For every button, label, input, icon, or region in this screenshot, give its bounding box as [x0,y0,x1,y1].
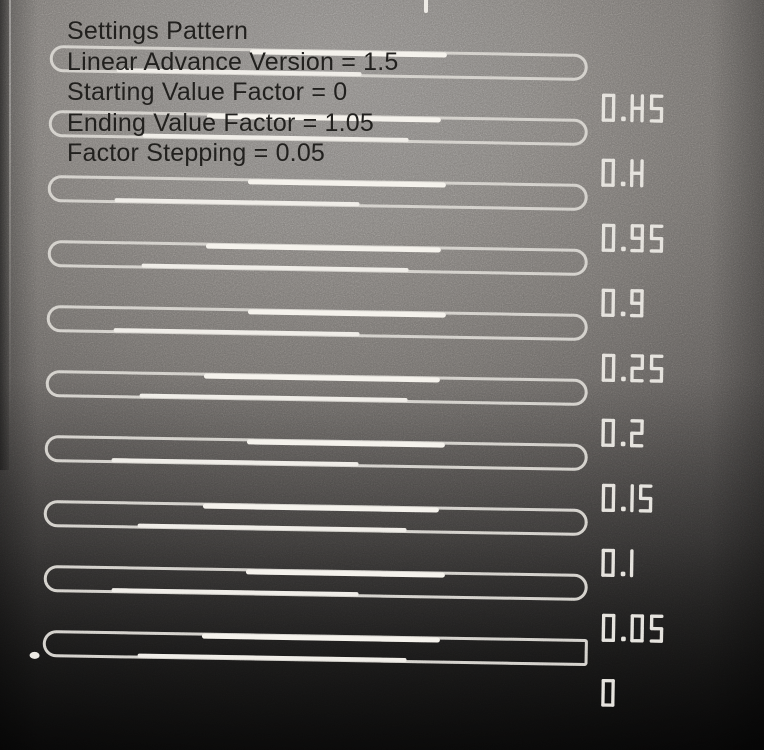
extrusion-highlight [247,439,446,447]
setting-line-start: Starting Value Factor = 0 [67,77,399,108]
factor-label [600,677,617,708]
test-line-row [42,630,683,717]
extrusion-highlight [112,458,359,467]
settings-text-block: Settings Pattern Linear Advance Version … [67,16,399,169]
extrusion-highlight [111,588,359,597]
extrusion-highlight [141,263,408,272]
extrusion-highlight [137,653,407,662]
extrusion-highlight [138,523,407,532]
extrusion-highlight [140,393,408,402]
setting-line-end: Ending Value Factor = 1.05 [67,108,399,139]
settings-title: Settings Pattern [67,16,399,47]
extrusion-highlight [246,569,445,577]
extrusion-highlight [248,309,446,317]
print-bed-photo: Settings Pattern Linear Advance Version … [0,0,764,750]
extrusion-highlight [115,198,360,207]
setting-line-version: Linear Advance Version = 1.5 [67,47,399,78]
extrusion-highlight [249,179,446,187]
setting-line-step: Factor Stepping = 0.05 [67,138,399,169]
extrusion-highlight [114,328,360,337]
